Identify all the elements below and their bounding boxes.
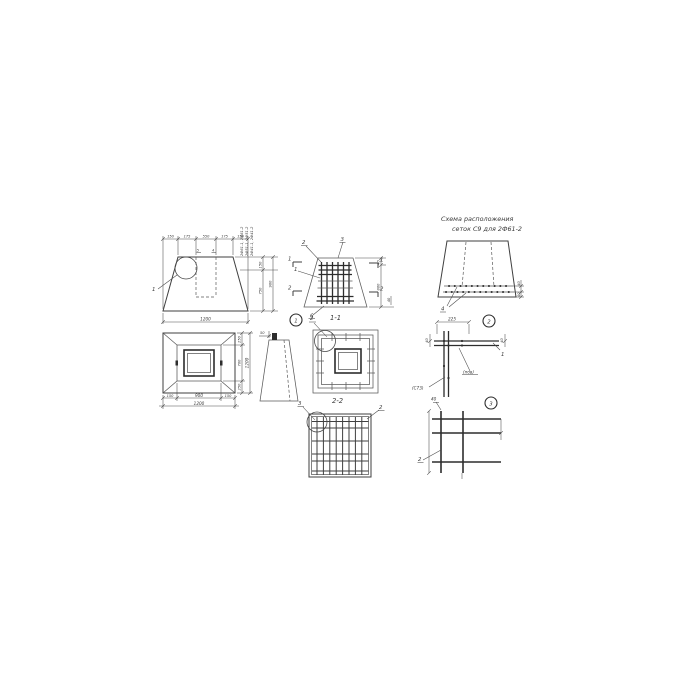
reinforcement-dim-far-right: 40 — [387, 297, 391, 302]
detail-callout-2: 2 — [487, 319, 491, 325]
plan-dim-bottom-total: 1200 — [194, 401, 205, 406]
section-1-1-geometry — [309, 322, 378, 393]
plan-dim-bottom-1: 150 — [167, 394, 175, 398]
front-type-mark-3: 2Ф41-1, 2Ф41-2 — [250, 226, 254, 256]
front-elevation-view: 1 5 4 150 175 550 175 150 1200 150 750 9… — [152, 226, 278, 324]
scheme-title-line2: сеток С9 для 2Ф61-2 — [452, 225, 522, 233]
plan-dim-bottom-3: 150 — [225, 394, 233, 398]
section-mark-left-2: 2 — [288, 286, 292, 292]
plan-dim-right-total: 1200 — [245, 357, 250, 368]
corner-detail-view: 225 2 40 40 1 (С73) (пов) — [412, 315, 507, 397]
front-dim-top-2: 175 — [184, 235, 192, 239]
front-type-mark-2: 2Ф51-1, 2Ф51-2 — [245, 226, 249, 256]
front-elevation-geometry — [158, 236, 278, 324]
front-dim-right-1: 150 — [259, 261, 263, 269]
corner-dim-top: 225 — [448, 316, 456, 321]
front-callout-label: 1 — [152, 287, 155, 293]
section22-leader-2: 2 — [379, 405, 383, 411]
grid-leader-2: 2 — [418, 457, 422, 463]
front-dim-right-total: 900 — [269, 280, 273, 288]
front-dim-top-1: 150 — [167, 235, 175, 239]
scheme-title-line1: Схема расположения — [441, 215, 514, 223]
section22-title: 2-2 — [332, 397, 343, 405]
reinforcement-geometry — [293, 242, 394, 319]
section-2-2-geometry — [298, 407, 385, 478]
plan-dim-bottom-2: 900 — [195, 393, 203, 398]
detail-callout-1: 1 — [294, 318, 297, 324]
grid-dim-top: 40 — [431, 397, 437, 402]
plan-view: 150 900 150 1200 250 700 250 1200 — [159, 331, 253, 409]
side-sketch-geometry — [259, 331, 298, 401]
section-1-1-view: 1 2 1-1 — [290, 314, 378, 393]
corner-leader-1: 1 — [501, 352, 504, 358]
engineering-drawing: 1 5 4 150 175 550 175 150 1200 150 750 9… — [0, 0, 700, 700]
grid-detail-view: 3 40 2 — [418, 397, 503, 480]
section11-title: 1-1 — [330, 314, 341, 322]
reinforcement-leader-2: 2 — [302, 240, 306, 246]
corner-label-right: (пов) — [463, 370, 474, 375]
side-sketch-dim-top: 50 — [260, 331, 265, 335]
corner-label-left: (С73) — [412, 386, 424, 391]
section11-leader-2: 2 — [310, 316, 314, 322]
plan-dim-right-1: 250 — [238, 335, 242, 343]
section-2-2-view: 3 2-2 2 — [298, 397, 385, 477]
corner-dim-right: 40 — [500, 338, 504, 343]
front-dim-top-4: 175 — [221, 235, 229, 239]
grid-detail-geometry — [418, 402, 503, 479]
reinforcement-leader-3: 3 — [341, 237, 345, 243]
mesh-leader-4: 4 — [441, 307, 445, 313]
front-label-4: 4 — [212, 249, 215, 253]
reinforcement-leader-1: 1 — [294, 267, 297, 273]
front-dim-top-3: 550 — [203, 235, 211, 239]
front-dim-bottom: 1200 — [200, 317, 211, 322]
plan-dim-right-3: 250 — [238, 383, 242, 391]
corner-dim-left: 40 — [425, 338, 429, 343]
drawing-sheet: 1 5 4 150 175 550 175 150 1200 150 750 9… — [0, 0, 700, 700]
reinforcement-elevation-view: 1 2 1 2 2 3 1 6 40 860 40 — [288, 237, 394, 320]
mesh-layout-view: Схема расположения сеток С9 для 2Ф61-2 4… — [438, 215, 524, 313]
front-dim-right-2: 750 — [259, 287, 263, 295]
mesh-layout-geometry — [438, 241, 524, 312]
side-sketch-view: 50 — [259, 331, 298, 401]
reinforcement-dim-right-1: 40 — [377, 260, 381, 265]
mesh-dim-right-bottom: 40 — [517, 292, 521, 297]
mesh-dim-right-top: 40 — [517, 281, 521, 286]
section-mark-right-2: 2 — [380, 287, 384, 293]
section-mark-left-1: 1 — [288, 257, 291, 263]
section22-leader-3: 3 — [298, 401, 302, 407]
plan-dim-right-2: 700 — [238, 359, 242, 367]
corner-detail-geometry — [428, 320, 507, 397]
section-mark-right-1: 1 — [380, 258, 383, 264]
front-type-mark-1: 2Ф61-1, 2Ф61-2 — [240, 226, 244, 256]
reinforcement-dim-right-2: 860 — [377, 283, 381, 291]
detail-callout-3: 3 — [489, 401, 493, 407]
front-label-5: 5 — [197, 249, 200, 253]
